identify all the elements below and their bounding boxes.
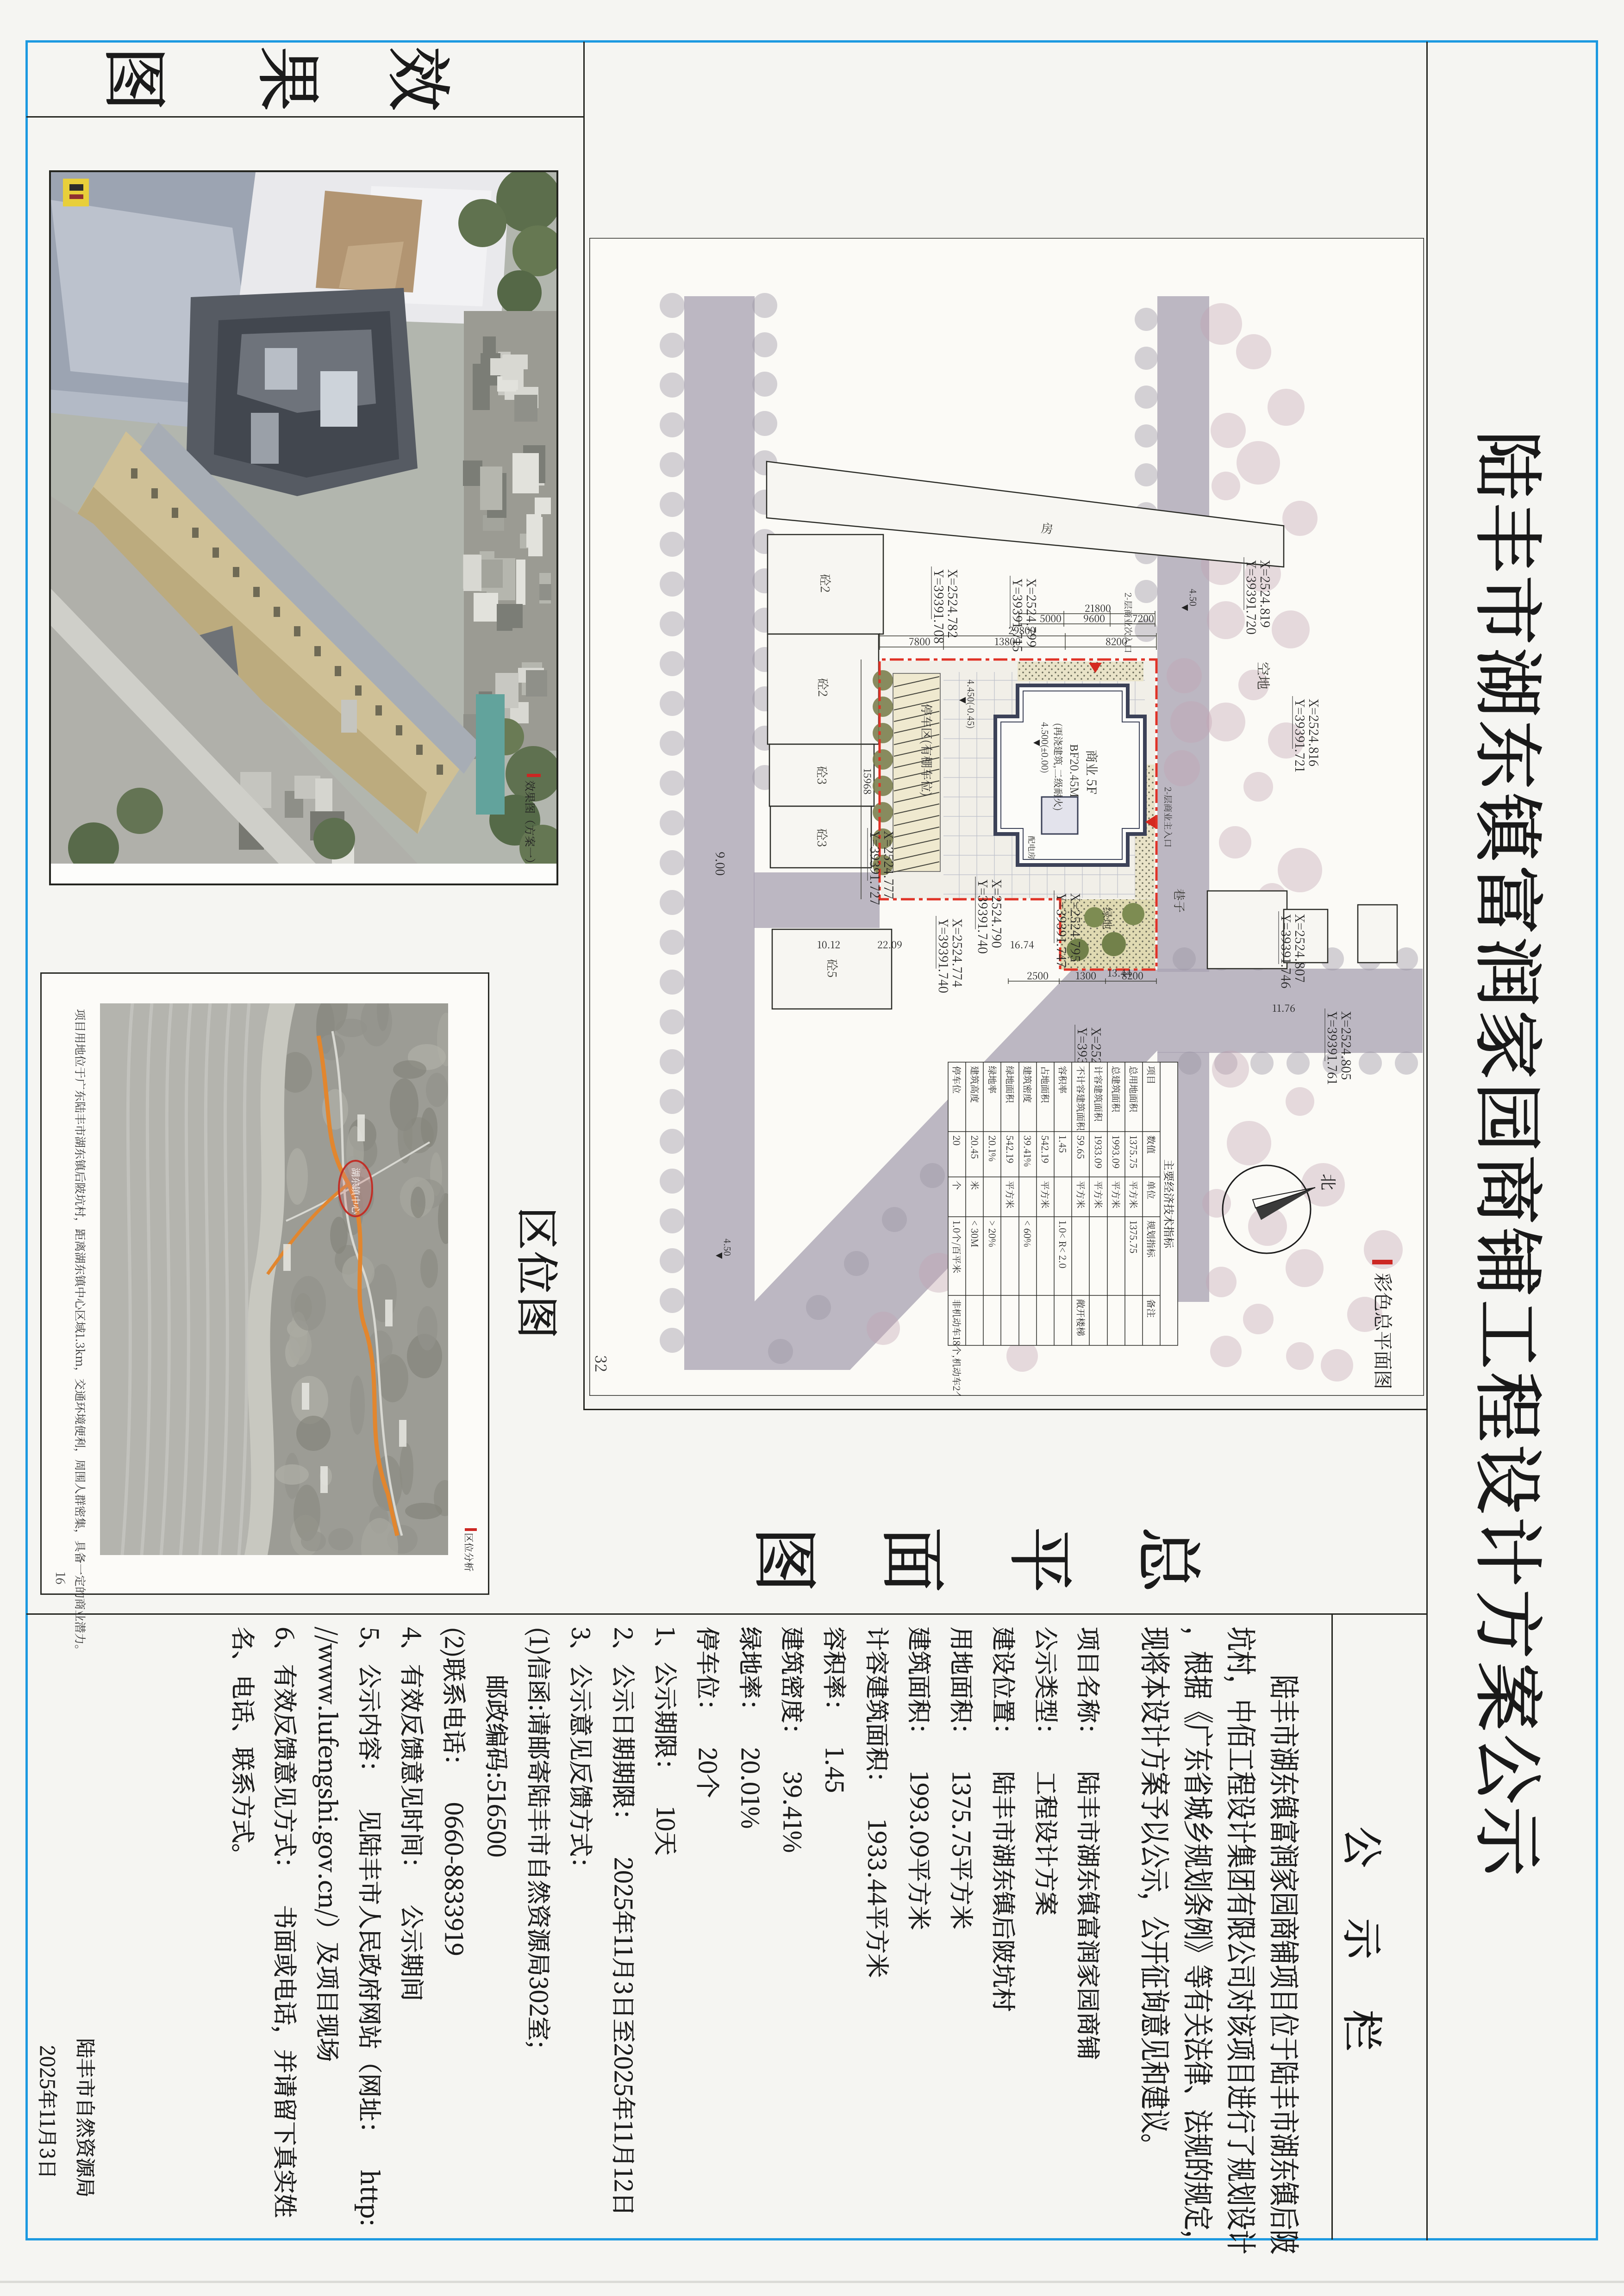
svg-text:巷子: 巷子 (1171, 889, 1188, 913)
svg-text:个: 个 (950, 1181, 964, 1190)
svg-text:542.19: 542.19 (1039, 1135, 1052, 1164)
svg-text:砼2: 砼2 (815, 678, 832, 697)
svg-text:4.50: 4.50 (721, 1238, 734, 1256)
svg-text:X=2524.816Y=39391.721: X=2524.816Y=39391.721 (1292, 699, 1324, 772)
svg-text:规划指标: 规划指标 (1145, 1220, 1158, 1258)
svg-text:39.41%: 39.41% (1021, 1135, 1035, 1167)
svg-text:1300: 1300 (1075, 969, 1096, 983)
svg-text:10.12: 10.12 (817, 938, 840, 952)
svg-text:平方米: 平方米 (1039, 1181, 1052, 1208)
svg-text:X=2524.774Y=39391.740: X=2524.774Y=39391.740 (935, 919, 967, 993)
svg-text:敞开楼梯: 敞开楼梯 (1074, 1299, 1088, 1336)
svg-text:2-层商业主入口: 2-层商业主入口 (1162, 787, 1174, 847)
svg-text:59.65: 59.65 (1074, 1135, 1088, 1159)
svg-text:主要经济技术指标: 主要经济技术指标 (1162, 1159, 1178, 1249)
svg-text:X=2524.790Y=39391.740: X=2524.790Y=39391.740 (974, 879, 1006, 954)
svg-text:X=2524.807Y=39391.746: X=2524.807Y=39391.746 (1278, 914, 1310, 989)
svg-text:2500: 2500 (1027, 969, 1049, 983)
svg-text:1.0< R< 2.0: 1.0< R< 2.0 (1056, 1220, 1070, 1269)
svg-text:4.450(-0.45): 4.450(-0.45) (965, 679, 977, 729)
svg-text:湖东镇中心: 湖东镇中心 (350, 1168, 363, 1214)
svg-text:20.45: 20.45 (968, 1135, 982, 1159)
svg-text:4.50: 4.50 (1187, 589, 1199, 606)
svg-text:砼5: 砼5 (824, 959, 841, 978)
svg-text:项目: 项目 (1145, 1066, 1158, 1084)
svg-text:BF20.45M: BF20.45M (1067, 744, 1083, 798)
svg-text:8200: 8200 (1106, 635, 1127, 648)
svg-text:13.44: 13.44 (1107, 966, 1131, 980)
svg-text:X=2524.782Y=39391.708: X=2524.782Y=39391.708 (931, 569, 962, 644)
svg-text:1993.09: 1993.09 (1110, 1135, 1123, 1169)
svg-text:非机动车18个,机动车2个: 非机动车18个,机动车2个 (950, 1299, 964, 1396)
svg-text:1.45: 1.45 (1056, 1135, 1070, 1153)
svg-text:> 20%: > 20% (986, 1220, 999, 1247)
svg-text:总建筑面积: 总建筑面积 (1110, 1066, 1123, 1113)
svg-text:32: 32 (591, 1355, 612, 1372)
svg-text:X=2524.795Y=39391.747: X=2524.795Y=39391.747 (1053, 893, 1085, 968)
svg-text:20.1%: 20.1% (986, 1135, 999, 1162)
svg-text:绿地: 绿地 (1100, 907, 1116, 929)
svg-text:16.74: 16.74 (1010, 938, 1034, 952)
svg-text:22.09: 22.09 (877, 938, 902, 952)
svg-text:4.500(±0.00): 4.500(±0.00) (1039, 722, 1051, 773)
svg-text:X=2524.799Y=39391.715: X=2524.799Y=39391.715 (1009, 579, 1041, 652)
svg-text:停车区(有棚车位): 停车区(有棚车位) (918, 703, 936, 796)
svg-text:砼3: 砼3 (814, 766, 831, 784)
svg-text:20: 20 (950, 1135, 964, 1145)
svg-text:平方米: 平方米 (1110, 1181, 1123, 1208)
svg-text:单位: 单位 (1145, 1181, 1158, 1199)
svg-text:商业 5F: 商业 5F (1083, 750, 1101, 794)
svg-text:配电房: 配电房 (1026, 836, 1038, 859)
svg-text:X=2524.805Y=39391.761: X=2524.805Y=39391.761 (1324, 1011, 1356, 1085)
svg-text:米: 米 (968, 1181, 982, 1190)
svg-text:7800: 7800 (909, 635, 931, 648)
svg-text:占地面积: 占地面积 (1039, 1066, 1052, 1103)
svg-text:21800: 21800 (1085, 601, 1111, 615)
svg-text:建筑高度: 建筑高度 (968, 1066, 982, 1103)
svg-text:容积率: 容积率 (1056, 1066, 1070, 1094)
svg-text:彩色总平面图: 彩色总平面图 (1370, 1273, 1398, 1389)
svg-text:绿地面积: 绿地面积 (1004, 1066, 1017, 1103)
svg-text:砼3: 砼3 (814, 828, 831, 847)
svg-text:建筑密度: 建筑密度 (1021, 1066, 1035, 1103)
svg-text:1933.09: 1933.09 (1092, 1135, 1106, 1169)
svg-text:1375.75: 1375.75 (1127, 1135, 1141, 1168)
svg-text:绿地率: 绿地率 (986, 1066, 999, 1094)
svg-text:11.76: 11.76 (1272, 1001, 1295, 1015)
svg-text:5000: 5000 (1040, 611, 1062, 625)
svg-text:房: 房 (1040, 519, 1054, 537)
svg-text:7200: 7200 (1132, 611, 1154, 625)
svg-text:停车位: 停车位 (950, 1066, 964, 1094)
svg-text:数值: 数值 (1145, 1135, 1158, 1154)
svg-text:542.19: 542.19 (1004, 1135, 1017, 1164)
svg-text:不计容建筑面积: 不计容建筑面积 (1074, 1066, 1088, 1131)
svg-text:X=2524.777Y=39391.727: X=2524.777Y=39391.727 (867, 831, 899, 905)
svg-text:北: 北 (1317, 1174, 1341, 1190)
svg-text:(再浇建筑,二级耐火): (再浇建筑,二级耐火) (1051, 723, 1065, 811)
svg-text:X=2524.819Y=39391.720: X=2524.819Y=39391.720 (1243, 560, 1275, 635)
svg-text:总用地面积: 总用地面积 (1127, 1066, 1141, 1113)
svg-text:平方米: 平方米 (1127, 1181, 1141, 1208)
svg-text:9.00: 9.00 (712, 852, 729, 876)
svg-text:15968: 15968 (861, 768, 874, 795)
svg-text:1375.75: 1375.75 (1127, 1220, 1141, 1253)
svg-text:空地: 空地 (1254, 662, 1274, 690)
svg-text:备注: 备注 (1145, 1299, 1158, 1318)
svg-text:平方米: 平方米 (1092, 1181, 1106, 1208)
svg-text:砼2: 砼2 (817, 574, 834, 593)
svg-text:1.0个/百平米: 1.0个/百平米 (950, 1220, 964, 1273)
svg-text:平方米: 平方米 (1004, 1181, 1017, 1208)
svg-text:平方米: 平方米 (1074, 1181, 1088, 1208)
svg-text:< 60%: < 60% (1021, 1220, 1035, 1247)
svg-text:计容建筑面积: 计容建筑面积 (1092, 1066, 1106, 1122)
svg-text:< 30M: < 30M (968, 1220, 982, 1248)
